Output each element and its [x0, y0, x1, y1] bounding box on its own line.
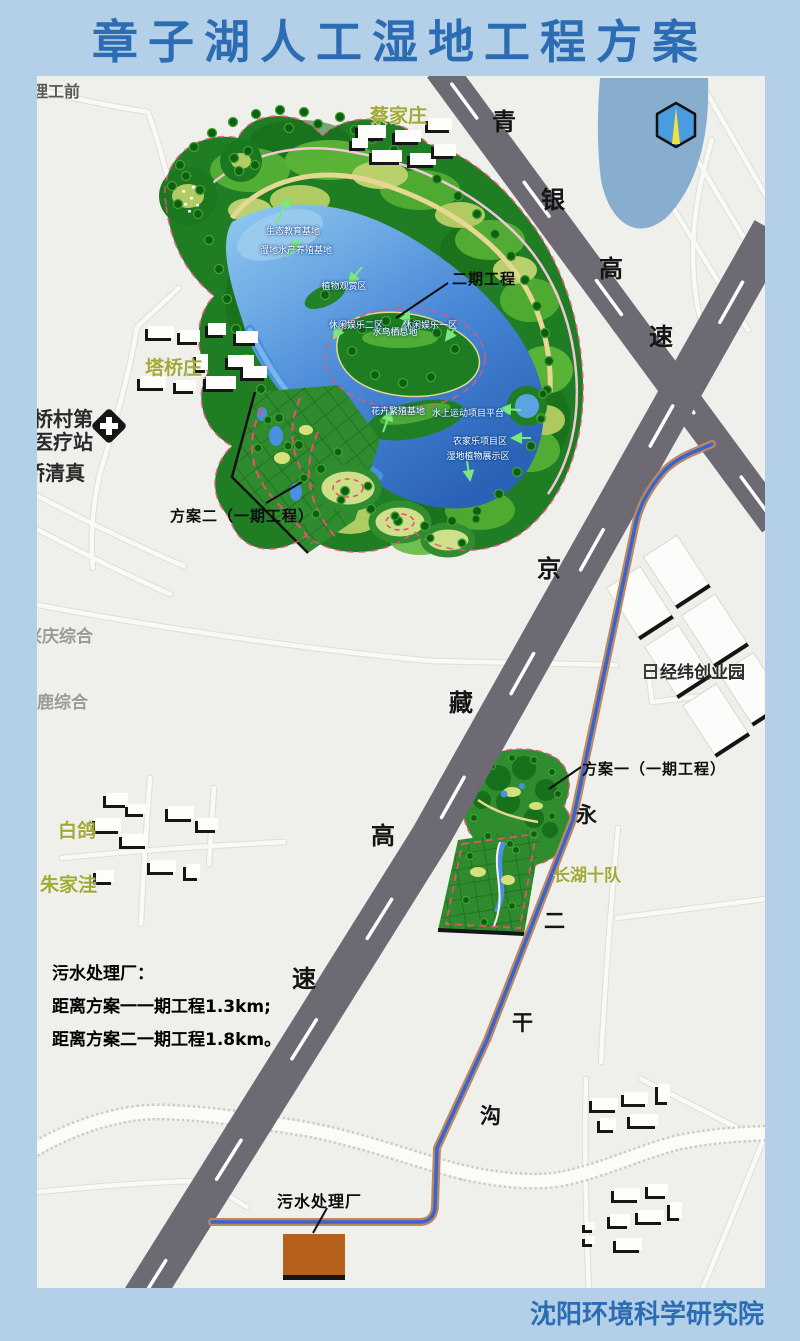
slide: 章子湖人工湿地工程方案	[0, 0, 800, 1341]
building	[128, 804, 146, 814]
place-baige: 白鸽	[58, 816, 96, 843]
building	[624, 1092, 648, 1104]
info-line-3: 距离方案二一期工程1.8km。	[52, 1024, 281, 1057]
building	[428, 118, 452, 130]
building	[658, 1084, 670, 1102]
place-top-left-partial: 理工前	[37, 78, 80, 102]
zone-label: 休闲娱乐一区	[403, 318, 457, 331]
qingyin-char-1: 青	[492, 102, 516, 137]
zone-label: 植物观赏区	[321, 279, 366, 292]
building	[106, 793, 128, 805]
building	[243, 366, 267, 378]
jingzang-char-2: 藏	[449, 683, 473, 718]
place-caijiazhuang: 蔡家庄	[370, 101, 427, 128]
building	[395, 130, 421, 142]
building	[96, 870, 114, 882]
grid-field-plan1	[438, 828, 542, 934]
zone-label: 湿地植物展示区	[446, 449, 509, 462]
info-line-1: 污水处理厂：	[52, 958, 281, 991]
building	[614, 1188, 640, 1200]
jingzang-char-3: 高	[371, 816, 395, 851]
zone-label: 生态教育基地	[266, 224, 320, 237]
building	[352, 138, 368, 148]
distance-info-block: 污水处理厂： 距离方案一一期工程1.3km; 距离方案二一期工程1.8km。	[52, 958, 281, 1057]
canal-char-4: 沟	[480, 1100, 501, 1130]
building	[198, 818, 218, 830]
qingyin-char-3: 高	[599, 249, 623, 284]
building	[372, 150, 402, 162]
map-canvas: 青 银 高 速 京 藏 高 速 永 二 干 沟 蔡家庄 塔桥庄 白鸽 朱家洼 长…	[37, 76, 765, 1288]
building	[168, 806, 194, 819]
place-zhujiawa: 朱家洼	[40, 870, 97, 897]
jingzang-char-1: 京	[537, 549, 561, 584]
info-line-2: 距离方案一一期工程1.3km;	[52, 991, 281, 1024]
building	[670, 1202, 682, 1218]
qingyin-char-2: 银	[541, 180, 565, 215]
jingzang-char-4: 速	[292, 959, 316, 994]
building	[600, 1118, 616, 1130]
clinic-icon	[91, 408, 128, 445]
canal-char-1: 永	[576, 799, 597, 829]
callout-plan1: 方案一（一期工程）	[582, 758, 726, 779]
callout-plan2: 方案二（一期工程）	[170, 505, 314, 526]
building	[648, 1184, 668, 1196]
place-selu: 色鹿综合	[37, 688, 88, 713]
building	[592, 1098, 618, 1110]
building	[585, 1222, 595, 1230]
water-body	[598, 78, 708, 228]
building	[180, 330, 200, 342]
place-jingwei-park: 经纬创业园	[660, 658, 745, 683]
callout-phase2: 二期工程	[452, 268, 516, 289]
zone-label: 花卉繁殖基地	[371, 404, 425, 417]
drainage-channel	[212, 444, 712, 1222]
place-changhushidui: 长湖十队	[553, 861, 621, 886]
building	[630, 1114, 658, 1126]
zone-label: 湿地水产养殖基地	[260, 243, 332, 256]
building	[610, 1214, 630, 1226]
zone-label: 农家乐项目区	[453, 434, 507, 447]
zone-label: 水上运动项目平台	[432, 406, 504, 419]
place-xingqing: 兴庆综合	[37, 622, 93, 647]
building	[585, 1236, 595, 1244]
page-title: 章子湖人工湿地工程方案	[0, 6, 800, 72]
building	[434, 144, 456, 156]
qingyin-char-4: 速	[649, 317, 673, 352]
building	[95, 818, 121, 831]
building	[208, 323, 226, 335]
building	[236, 331, 258, 343]
canal-char-2: 二	[544, 905, 565, 935]
place-clinic-line2: 医疗站	[37, 426, 93, 455]
compass-icon	[657, 103, 695, 147]
building	[176, 380, 196, 391]
building	[616, 1238, 642, 1250]
building	[638, 1210, 664, 1222]
building	[206, 376, 236, 389]
building	[186, 864, 200, 878]
footer-credit: 沈阳环境科学研究院	[0, 1292, 800, 1341]
place-taqiaozhuang: 塔桥庄	[145, 353, 202, 380]
canal-char-3: 干	[512, 1007, 533, 1037]
building	[148, 326, 174, 338]
building	[122, 834, 148, 846]
map-artwork	[37, 76, 765, 1288]
sewage-plant-building	[283, 1234, 345, 1280]
building	[410, 153, 436, 165]
callout-sewage-plant: 污水处理厂	[277, 1188, 362, 1212]
place-qiaoqingzhen: 桥清真	[37, 457, 85, 486]
building	[150, 860, 176, 872]
